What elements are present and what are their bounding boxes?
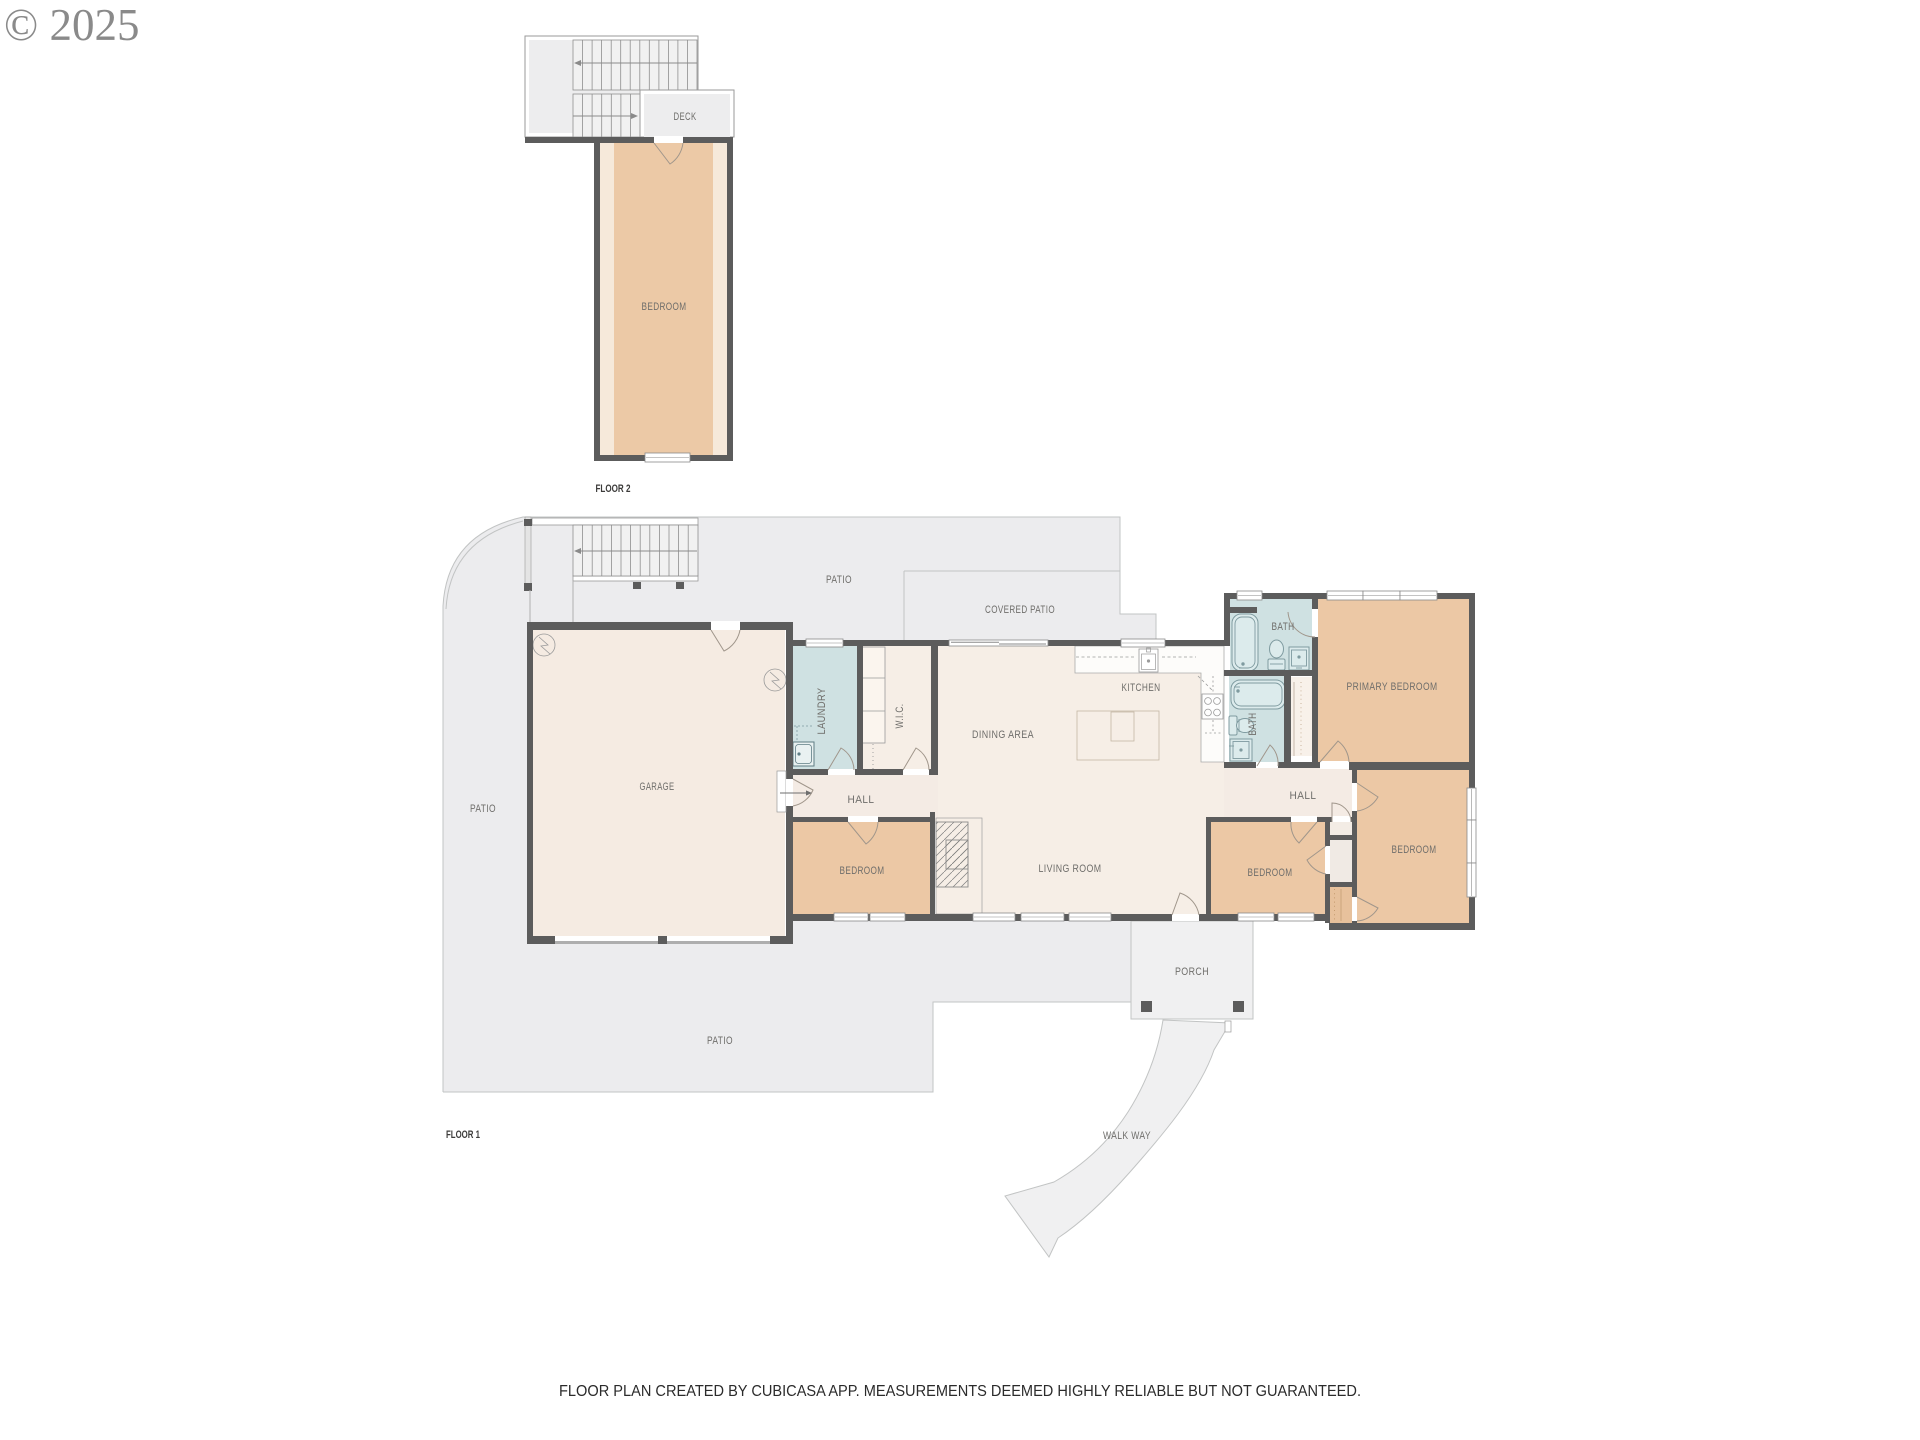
svg-text:GARAGE: GARAGE (640, 781, 675, 793)
svg-text:PRIMARY BEDROOM: PRIMARY BEDROOM (1347, 681, 1438, 693)
svg-text:BEDROOM: BEDROOM (840, 865, 885, 877)
svg-text:HALL: HALL (848, 794, 875, 806)
svg-text:FLOOR PLAN CREATED BY CUBICASA: FLOOR PLAN CREATED BY CUBICASA APP. MEAS… (559, 1383, 1361, 1400)
svg-text:BATH: BATH (1272, 621, 1295, 633)
svg-text:BEDROOM: BEDROOM (1392, 844, 1437, 856)
svg-text:PATIO: PATIO (826, 574, 852, 586)
svg-text:HALL: HALL (1290, 790, 1317, 802)
svg-text:PORCH: PORCH (1175, 966, 1209, 978)
svg-text:WALK WAY: WALK WAY (1103, 1130, 1151, 1142)
svg-text:DECK: DECK (674, 111, 697, 123)
svg-text:DINING AREA: DINING AREA (972, 729, 1034, 741)
svg-text:LAUNDRY: LAUNDRY (816, 687, 828, 734)
svg-text:© 2025: © 2025 (4, 0, 139, 50)
svg-text:LIVING ROOM: LIVING ROOM (1039, 863, 1102, 875)
svg-text:PATIO: PATIO (707, 1035, 733, 1047)
svg-text:BEDROOM: BEDROOM (642, 301, 687, 313)
svg-text:PATIO: PATIO (470, 803, 496, 815)
svg-text:FLOOR 2: FLOOR 2 (596, 483, 631, 495)
svg-text:FLOOR 1: FLOOR 1 (446, 1129, 480, 1141)
svg-text:BATH: BATH (1247, 713, 1259, 736)
svg-text:KITCHEN: KITCHEN (1122, 682, 1161, 694)
svg-text:W.I.C.: W.I.C. (894, 704, 906, 729)
svg-text:BEDROOM: BEDROOM (1248, 867, 1293, 879)
svg-text:COVERED PATIO: COVERED PATIO (985, 604, 1055, 616)
